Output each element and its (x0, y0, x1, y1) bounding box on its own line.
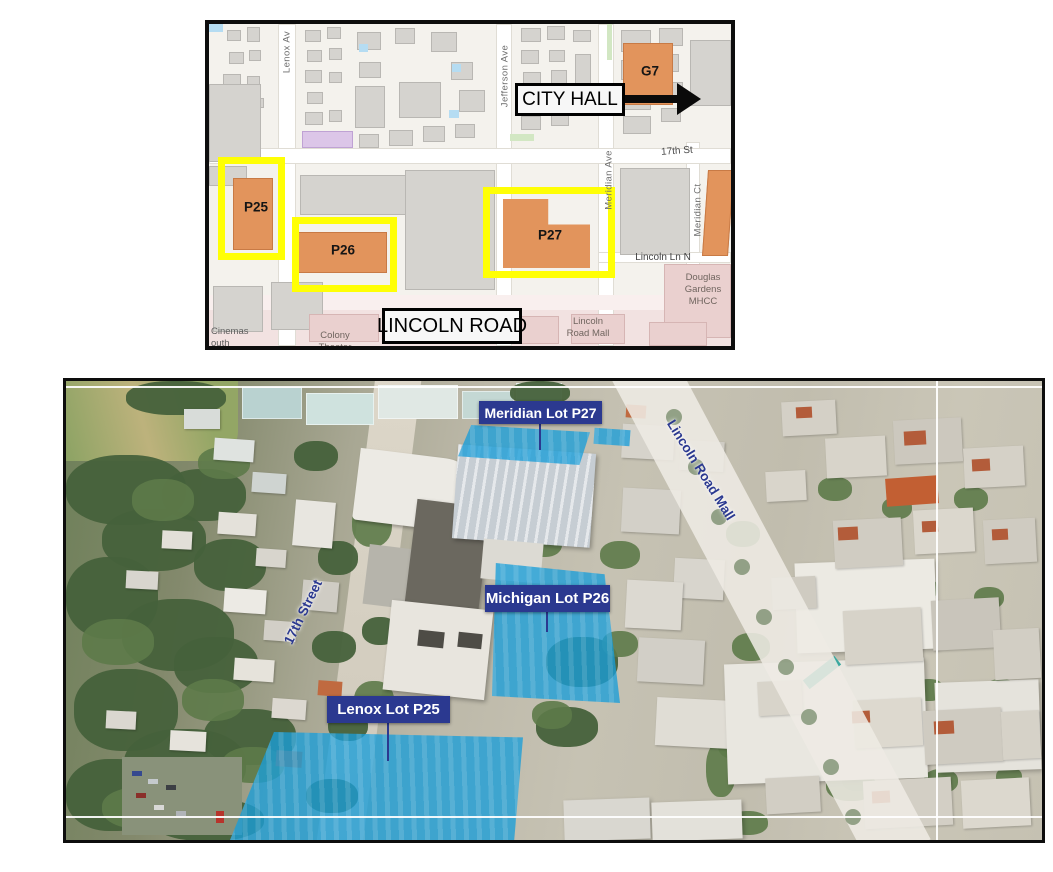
callout-lincoln-road: LINCOLN ROAD (382, 308, 522, 344)
boundary-line-top (66, 386, 1042, 388)
parcel-label-p26: P26 (331, 243, 355, 258)
lot-highlight-p25 (230, 732, 523, 840)
lot-label-p25: Lenox Lot P25 (327, 696, 450, 723)
leader-p26 (546, 612, 548, 632)
overview-map-canvas: P25 P26 P27 G7 Lenox Av Jefferson Ave Me… (209, 24, 731, 346)
street-label-jefferson: Jefferson Ave (500, 45, 511, 107)
street-label-meridian-ave: Meridian Ave (604, 150, 615, 210)
leader-p27 (539, 424, 541, 450)
overview-map: P25 P26 P27 G7 Lenox Av Jefferson Ave Me… (205, 20, 735, 350)
lincoln-road-mall-corridor (581, 378, 930, 843)
lot-highlight-p27-east (593, 428, 630, 446)
lot-label-p27: Meridian Lot P27 (479, 401, 602, 424)
city-hall-arrow (625, 95, 677, 103)
mall-tree (823, 759, 839, 775)
lot-highlight-p26 (492, 563, 620, 703)
lot-label-p26: Michigan Lot P26 (485, 585, 610, 612)
mall-tree (801, 709, 817, 725)
aerial-photo: 17th Street Lincoln Road Mall Meridian L… (63, 378, 1045, 843)
leader-p25 (387, 723, 389, 761)
street-label-lincoln-ln: Lincoln Ln N (635, 252, 691, 265)
place-label-cinemas: Cinemas outh (211, 326, 249, 346)
place-label-colony-theater: Colony Theater (319, 330, 352, 346)
parcel-east-edge (702, 170, 731, 256)
parcel-label-g7: G7 (641, 64, 659, 79)
street-label-meridian-ct: Meridian Ct (693, 184, 704, 237)
parcel-label-p25: P25 (244, 200, 268, 215)
page: P25 P26 P27 G7 Lenox Av Jefferson Ave Me… (0, 0, 1053, 872)
mall-tree (756, 609, 772, 625)
street-label-lenox: Lenox Av (282, 31, 293, 73)
place-label-lincoln-road-mall: Lincoln Road Mall (567, 316, 610, 340)
mall-tree (734, 559, 750, 575)
mall-tree (778, 659, 794, 675)
boundary-line-right (936, 381, 938, 840)
street-label-17th-st: 17th St (661, 145, 693, 160)
boundary-line-bottom (66, 816, 1042, 818)
place-label-douglas-gardens: Douglas Gardens MHCC (685, 272, 721, 308)
callout-city-hall: CITY HALL (515, 83, 625, 116)
city-hall-arrow-head (677, 83, 701, 115)
parcel-label-p27: P27 (538, 228, 562, 243)
